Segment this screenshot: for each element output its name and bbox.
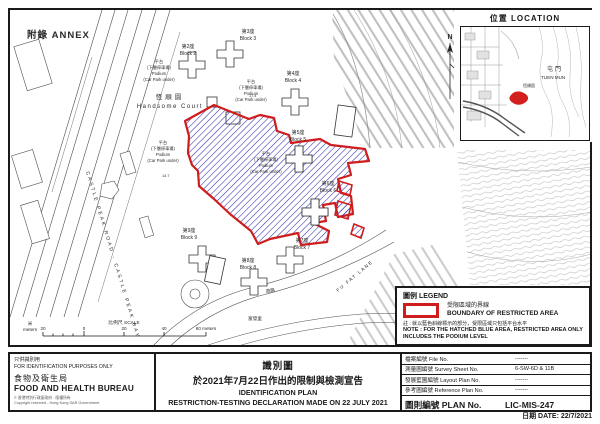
plan-subtitle-zh: 於2021年7月22日作出的限制與檢測宣告 [156,373,400,387]
podium-label: 平台 (下層停車場) Podium (Car Park under) [147,139,179,163]
block-2-label-en: Block 2 [180,51,197,57]
spot-height: 17.4 [249,94,256,98]
date-line: 日期 DATE: 22/7/2021 [8,411,592,421]
podium-label: 平台 (下層停車場) Podium (Car Park under) [235,78,267,102]
restricted-area-fragment [351,224,364,238]
terrain-contours [457,150,590,285]
svg-text:平台: 平台 [155,58,163,65]
legend-box: 圖例 LEGEND 受限區域的界線 BOUNDARY OF RESTRICTED… [395,286,591,346]
svg-text:(下層停車場): (下層停車場) [147,64,171,71]
table-row-survey-sheet: 測量圖編號 Survey Sheet No. 6-SW-6D & 11B [402,365,590,376]
location-inset-title: 位置 LOCATION [455,10,595,26]
boundary-swatch-icon [403,303,439,318]
scale-tick: 20 [121,326,127,331]
svg-text:平台: 平台 [247,78,255,85]
legend-boundary-zh: 受限區域的界線 [447,303,558,310]
svg-text:平台: 平台 [159,139,167,146]
legend-title: 圖例 LEGEND [403,291,585,301]
block-8-label-en: Block 8 [240,265,257,271]
file-no-zh: 檔案編號 [405,357,427,363]
legend-boundary-en: BOUNDARY OF RESTRICTED AREA [447,310,558,317]
title-block-plan-title: 識別圖 於2021年7月22日作出的限制與檢測宣告 IDENTIFICATION… [156,354,402,410]
file-no-value: ------- [515,356,587,362]
road-label-zh: 道路 [265,286,276,295]
block-7-label-zh: 第7座 [296,237,309,244]
annex-label: 附錄 ANNEX [27,29,90,41]
identification-only-en: FOR IDENTIFICATION PURPOSES ONLY [14,364,150,371]
plan-no-zh: 圖則編號 [405,400,439,410]
plan-document-page: N 附錄 ANNEX 恆順園 Handsome Court 第2座 Block … [0,0,600,424]
scale-unit-en: meters [23,327,38,332]
table-row-layout-plan: 發展藍圖編號 Layout Plan No. ------- [402,375,590,386]
legend-note-en-line1: NOTE : FOR THE HATCHED BLUE AREA, RESTRI… [403,327,585,334]
estate-name-en: Handsome Court [137,104,203,110]
spot-height: 14.7 [162,174,169,178]
svg-text:N: N [447,34,452,41]
block-3-label-en: Block 3 [240,36,257,42]
fu-fat-lane-label-zh: 富發里 [248,315,262,322]
plan-subtitle-en: RESTRICTION-TESTING DECLARATION MADE ON … [156,398,400,407]
block-5-label-zh: 第5座 [292,129,305,136]
plan-no-en: PLAN No. [442,400,482,410]
legend-note-en-line2: INCLUDES THE PODIUM LEVEL [403,334,585,341]
restricted-area-fragment [335,201,351,219]
block-5-label-en: Block 5 [290,137,307,143]
location-inset: 位置 LOCATION [455,10,595,142]
block-9-label-en: Block 9 [181,235,198,241]
bureau-name-en: FOOD AND HEALTH BUREAU [14,384,150,393]
block-2-label-zh: 第2座 [182,43,195,50]
block-9-label-zh: 第9座 [183,227,196,234]
inset-site-label: 恆順園 [523,82,535,88]
plan-title-zh: 識別圖 [156,358,400,372]
roadside-buildings [12,39,209,308]
svg-text:Podium: Podium [156,152,171,157]
svg-text:(下層停車場): (下層停車場) [254,156,278,163]
svg-text:Podium: Podium [259,163,274,168]
title-block-references: 檔案編號 File No. ------- 測量圖編號 Survey Sheet… [402,354,590,410]
table-row-file-no: 檔案編號 File No. ------- [402,354,590,365]
scale-label: 比例尺 SCALE [108,319,139,326]
plan-title-en: IDENTIFICATION PLAN [156,388,400,397]
copyright-en: Copyright reserved - Hong Kong SAR Gover… [14,401,150,406]
scale-tick: 0 [83,326,86,331]
reference-plan-zh: 參考圖編號 [405,388,433,394]
bureau-name-zh: 食物及衛生局 [14,373,150,384]
title-block: 只供識別用 FOR IDENTIFICATION PURPOSES ONLY 食… [8,352,592,412]
survey-sheet-zh: 測量圖編號 [405,367,433,373]
scale-tick: 20 [40,326,46,331]
layout-plan-en: Layout Plan No. [440,378,480,384]
reference-plan-value: ------- [515,387,587,393]
location-site-marker [509,91,528,104]
legend-note-zh: 註 : 就以藍色斜線標示的部分，受限區域只包括平台水平 [403,320,585,327]
block-8-label-zh: 第8座 [242,257,255,264]
podium-label: 平台 (下層停車場) Podium (Car Park under) [143,58,175,82]
table-row-reference-plan: 參考圖編號 Reference Plan No. ------- [402,386,590,397]
svg-text:(下層停車場): (下層停車場) [239,84,263,91]
scale-tick: 40 [161,326,167,331]
block-7-label-en: Block 7 [294,245,311,251]
svg-text:(Car Park under): (Car Park under) [143,77,175,82]
plan-no-value: LIC-MIS-247 [505,400,587,410]
survey-sheet-en: Survey Sheet No. [435,367,479,373]
scale-unit-zh: 米 [28,320,33,327]
scale-bar: 米 meters 比例尺 SCALE 20 0 20 40 60 meters [23,319,217,336]
block-4-label-zh: 第4座 [287,70,300,77]
inset-district-zh: 屯門 [547,65,563,73]
block-6-label-en: Block 6 [320,188,337,194]
block-6-label-zh: 第6座 [322,180,335,187]
file-no-en: File No. [429,357,448,363]
svg-text:(下層停車場): (下層停車場) [151,145,175,152]
block-4-label-en: Block 4 [285,78,302,84]
inset-district-en: TUEN MUN [541,75,565,80]
layout-plan-zh: 發展藍圖編號 [405,378,439,384]
estate-name-zh: 恆順園 [156,92,185,101]
fu-fat-lane-label: FU FAT LANE [335,259,374,293]
reference-plan-en: Reference Plan No. [435,388,484,394]
svg-text:(Car Park under): (Car Park under) [250,169,282,174]
survey-sheet-value: 6-SW-6D & 11B [515,366,587,372]
scale-tick: 60 meters [196,326,217,331]
block-3-label-zh: 第3座 [242,28,255,35]
svg-text:平台: 平台 [262,150,270,157]
layout-plan-value: ------- [515,377,587,383]
svg-text:Podium: Podium [152,71,167,76]
location-inset-map: 恆順園 屯門 TUEN MUN [460,26,590,141]
svg-text:(Car Park under): (Car Park under) [147,158,179,163]
title-block-issuer: 只供識別用 FOR IDENTIFICATION PURPOSES ONLY 食… [10,354,156,410]
